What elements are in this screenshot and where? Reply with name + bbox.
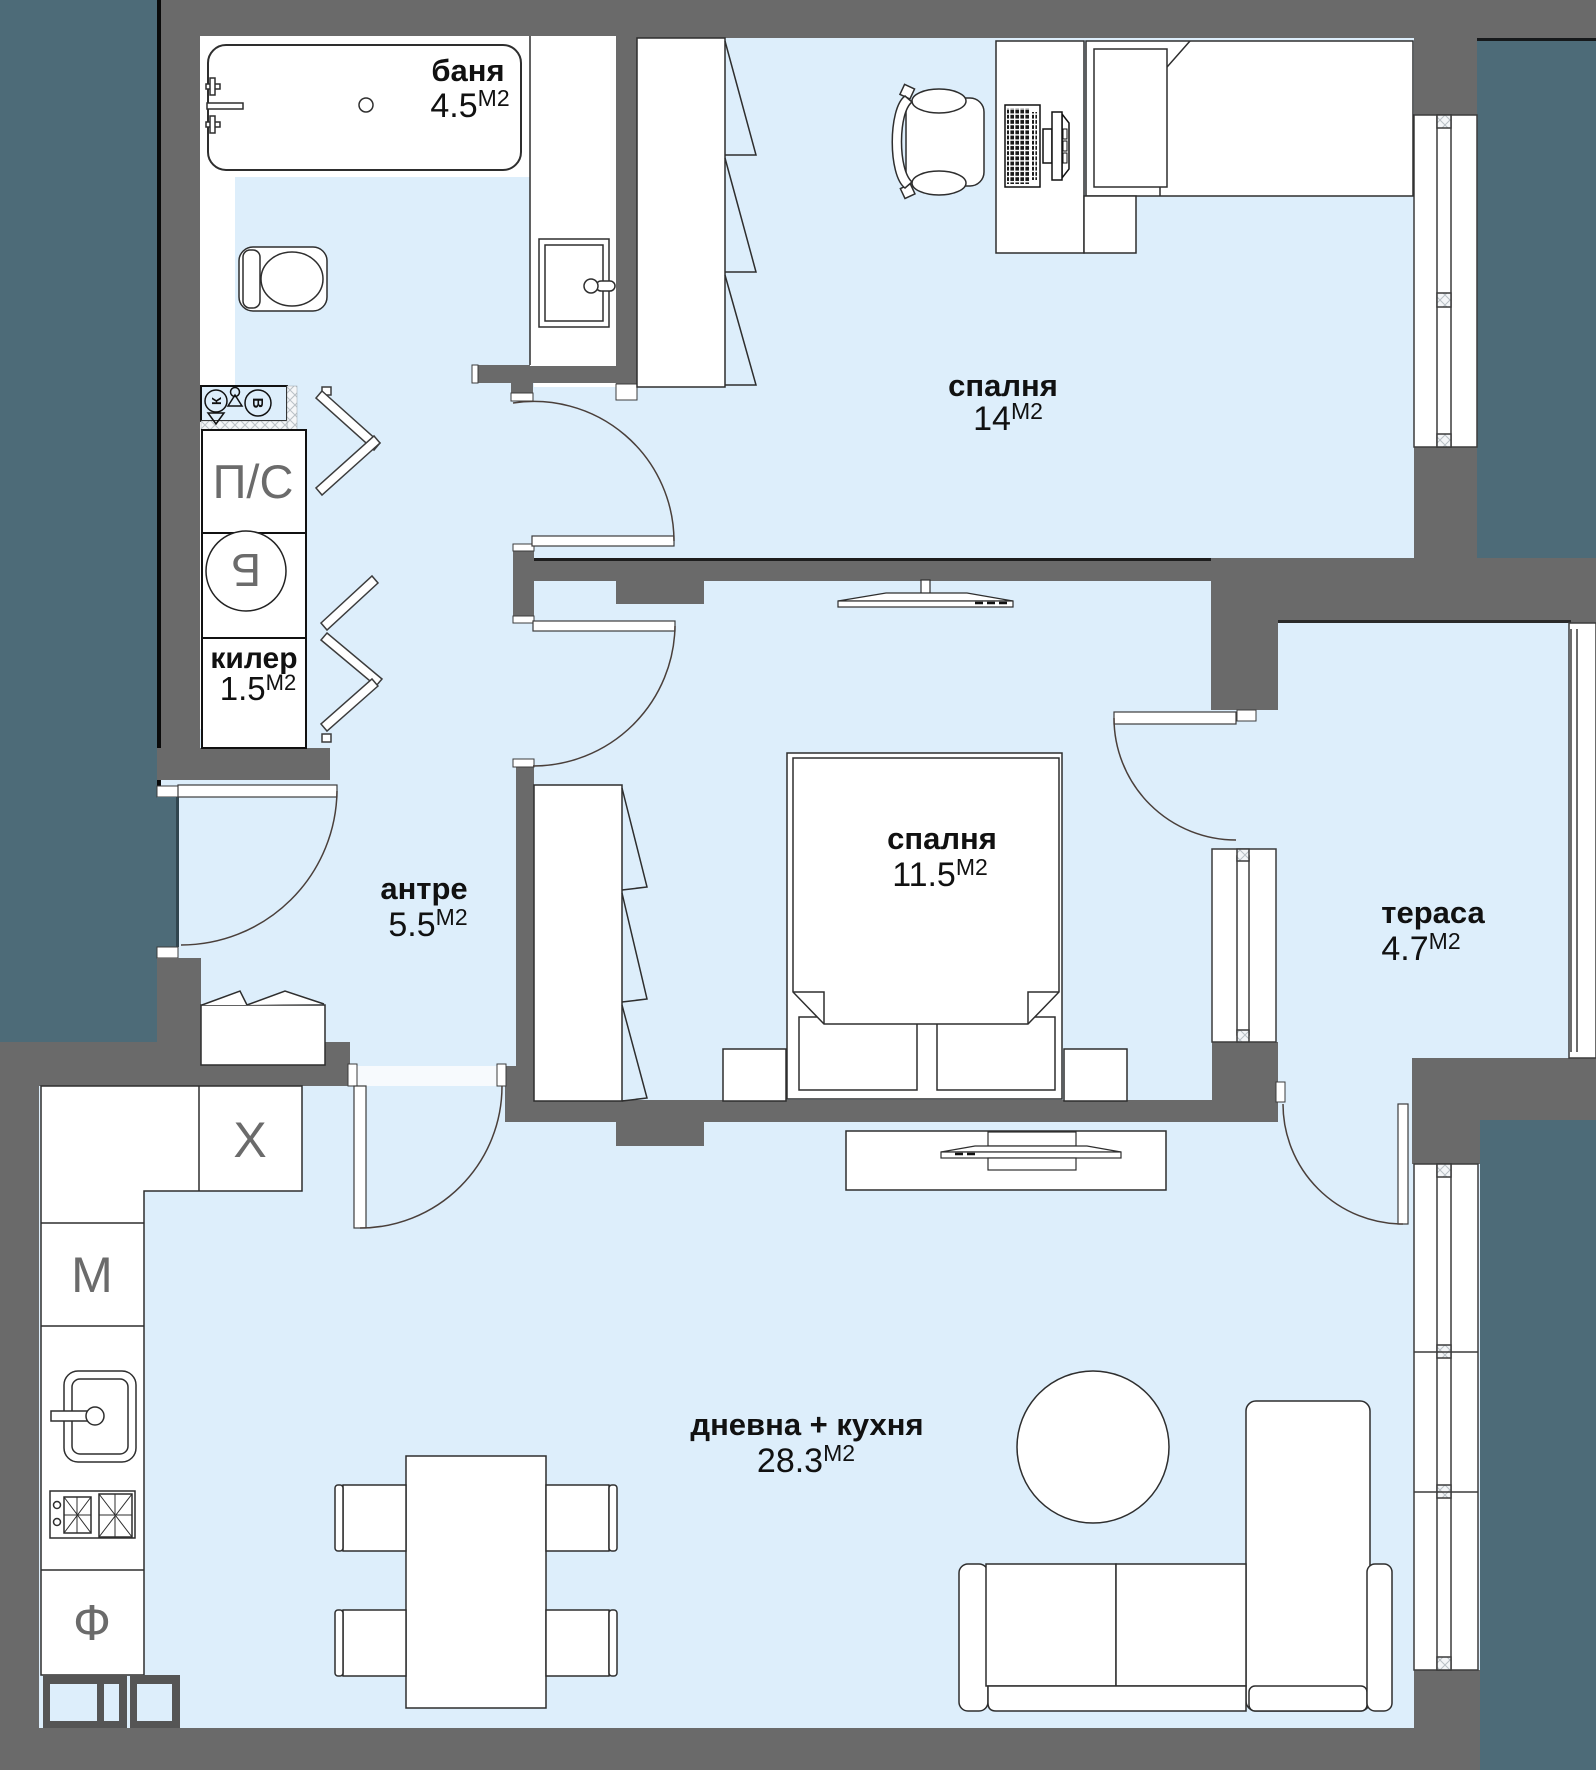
svg-text:тераса: тераса	[1381, 895, 1485, 930]
svg-text:спалня: спалня	[887, 821, 997, 856]
svg-text:баня: баня	[431, 53, 504, 88]
svg-text:В: В	[249, 398, 266, 409]
svg-text:П/С: П/С	[213, 455, 294, 508]
svg-text:дневна + кухня: дневна + кухня	[690, 1407, 923, 1442]
svg-text:Х: Х	[233, 1112, 266, 1168]
svg-text:Ф: Ф	[73, 1595, 111, 1651]
svg-text:Б: Б	[231, 544, 261, 596]
svg-text:антре: антре	[380, 871, 467, 906]
svg-text:М: М	[71, 1247, 113, 1303]
svg-text:К: К	[209, 397, 224, 405]
